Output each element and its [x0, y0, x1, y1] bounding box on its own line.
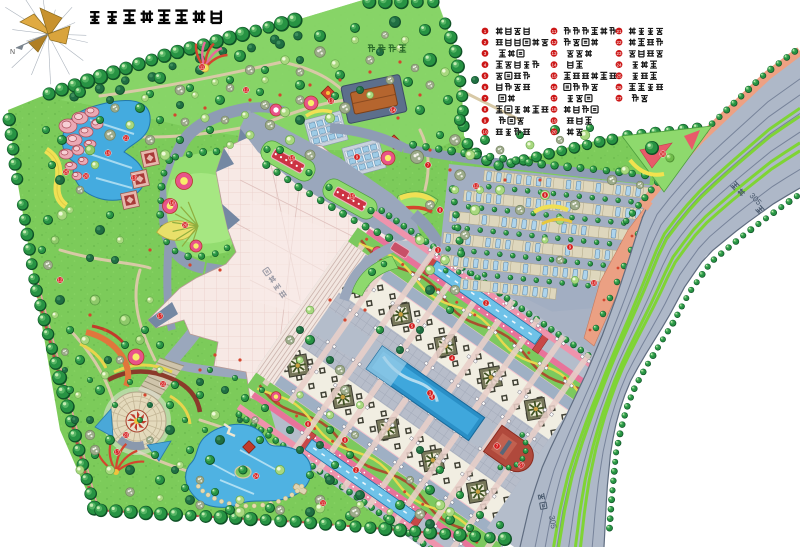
svg-text:27: 27 [616, 96, 622, 101]
svg-text:13: 13 [551, 51, 557, 56]
svg-text:16: 16 [551, 85, 557, 90]
svg-text:15: 15 [290, 156, 295, 161]
svg-text:25: 25 [616, 74, 622, 79]
svg-text:27: 27 [519, 463, 524, 468]
svg-text:22: 22 [616, 40, 622, 45]
svg-text:14: 14 [391, 108, 396, 113]
svg-text:26: 26 [616, 85, 622, 90]
svg-text:N: N [10, 49, 15, 56]
svg-text:17: 17 [115, 450, 120, 455]
svg-text:15: 15 [551, 74, 557, 79]
svg-text:12: 12 [58, 278, 63, 283]
svg-text:12: 12 [551, 40, 557, 45]
svg-text:10: 10 [592, 281, 597, 286]
svg-text:17: 17 [158, 314, 163, 319]
svg-text:23: 23 [124, 433, 129, 438]
svg-text:22: 22 [161, 382, 166, 387]
svg-text:17: 17 [551, 96, 557, 101]
svg-text:20: 20 [551, 130, 557, 135]
svg-text:15: 15 [350, 194, 355, 199]
svg-text:24: 24 [254, 474, 259, 479]
svg-text:21: 21 [124, 136, 129, 141]
svg-text:19: 19 [106, 151, 111, 156]
svg-text:23: 23 [616, 51, 622, 56]
svg-text:19: 19 [551, 118, 557, 123]
svg-text:24: 24 [616, 62, 622, 67]
svg-text:14: 14 [551, 62, 557, 67]
svg-text:13: 13 [329, 99, 334, 104]
svg-text:30: 30 [661, 152, 666, 157]
svg-text:26: 26 [183, 223, 188, 228]
svg-text:11: 11 [200, 65, 205, 70]
svg-text:16: 16 [170, 201, 175, 206]
svg-text:21: 21 [616, 29, 622, 34]
svg-text:18: 18 [551, 107, 557, 112]
svg-text:10: 10 [482, 130, 488, 135]
svg-text:20: 20 [84, 174, 89, 179]
svg-text:12: 12 [474, 184, 479, 189]
svg-text:13: 13 [132, 176, 137, 181]
svg-text:11: 11 [321, 501, 326, 506]
svg-text:11: 11 [552, 29, 557, 34]
svg-text:12: 12 [244, 88, 249, 93]
svg-text:25: 25 [64, 170, 69, 175]
